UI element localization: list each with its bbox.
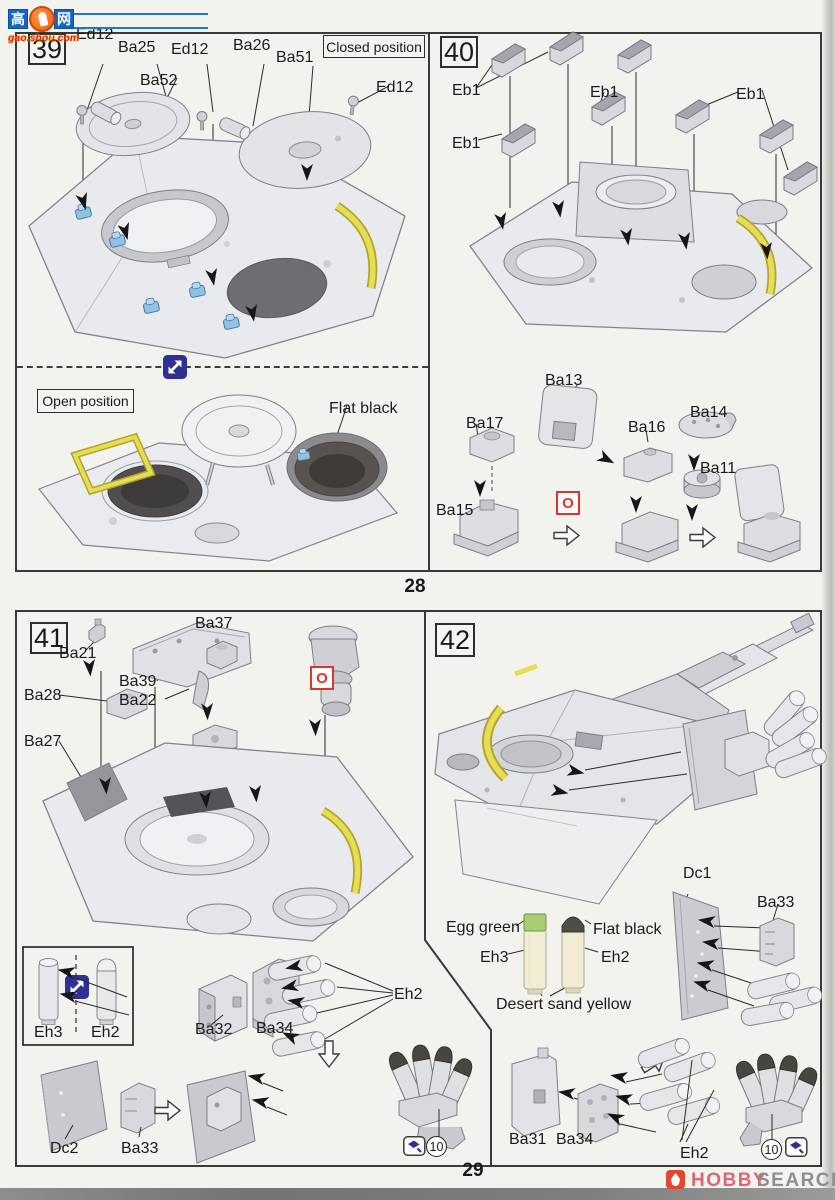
brand-hobby: HOBBY <box>691 1170 767 1192</box>
count-badge-41: 10 <box>426 1136 447 1157</box>
closed-position-text: Closed position <box>326 39 422 55</box>
watermark-char-left: 高 <box>8 9 28 29</box>
part-label-ba31: Ba31 <box>509 1132 546 1149</box>
closed-open-divider <box>17 366 428 368</box>
part-label-ba33-42: Ba33 <box>757 895 794 912</box>
optional-symbol-text-41: O <box>316 670 328 687</box>
part-label-ba16: Ba16 <box>628 420 665 437</box>
part-label-ed12-c: Ed12 <box>376 80 413 97</box>
watermark-line-bottom <box>68 27 208 29</box>
watermark-line-top <box>68 13 208 15</box>
part-label-eb1-a: Eb1 <box>452 83 480 100</box>
count-badge-text-42: 10 <box>765 1143 779 1157</box>
watermark-logo: 高 网 gao.shou.com <box>8 6 208 46</box>
part-label-ba52: Ba52 <box>140 73 177 90</box>
part-label-dc1: Dc1 <box>683 866 711 883</box>
brand-search: SEARCH <box>757 1170 835 1192</box>
panel-divider-top <box>428 32 430 572</box>
watermark-gear-icon <box>29 6 55 32</box>
part-label-ba26: Ba26 <box>233 38 270 55</box>
watermark-char-right-text: 网 <box>57 9 71 29</box>
part-label-ba39: Ba39 <box>119 674 156 691</box>
optional-symbol-step41: O <box>310 666 334 690</box>
part-label-eh2-cluster-42: Eh2 <box>680 1146 708 1163</box>
illustration-step39-open <box>17 393 411 565</box>
part-label-ba34-41: Ba34 <box>256 1021 293 1038</box>
part-label-ba11: Ba11 <box>700 461 736 478</box>
part-label-ba14: Ba14 <box>690 405 727 422</box>
part-label-eh3-box: Eh3 <box>34 1025 62 1042</box>
hobbysearch-flame-icon <box>666 1170 685 1189</box>
part-label-ba13: Ba13 <box>545 373 582 390</box>
part-label-eh3-42: Eh3 <box>480 950 508 967</box>
part-label-eh2-42: Eh2 <box>601 950 629 967</box>
count-badge-42: 10 <box>761 1139 782 1160</box>
instruction-sheet-page: 39 40 41 42 Closed position Open positio… <box>0 0 835 1200</box>
watermark-char-right: 网 <box>54 9 74 29</box>
part-label-ba21: Ba21 <box>59 646 96 663</box>
part-label-eb1-b: Eb1 <box>590 85 618 102</box>
part-label-ba28: Ba28 <box>24 688 61 705</box>
part-label-ba15: Ba15 <box>436 503 473 520</box>
step-number-42: 42 <box>435 623 475 657</box>
open-position-text: Open position <box>42 393 128 409</box>
illustration-step40 <box>432 30 822 365</box>
optional-symbol-text-40: O <box>562 495 574 512</box>
part-label-ba22: Ba22 <box>119 693 156 710</box>
glue-icon-42 <box>785 1137 809 1159</box>
closed-position-label: Closed position <box>323 35 425 58</box>
optional-symbol-step40: O <box>556 491 580 515</box>
illustration-step41 <box>15 615 427 947</box>
part-label-dc2: Dc2 <box>50 1141 78 1158</box>
illustration-step41-smoke-launchers <box>15 945 490 1167</box>
illustration-step42-paint-guide <box>430 890 830 1048</box>
part-label-ba37: Ba37 <box>195 616 232 633</box>
glue-icon-41 <box>403 1136 427 1158</box>
illustration-step39-closed <box>17 64 428 366</box>
paint-label-flat-black-39: Flat black <box>329 401 397 418</box>
watermark-thumb-icon <box>38 11 49 26</box>
part-label-ba51: Ba51 <box>276 50 313 67</box>
part-label-eh2-cluster-41: Eh2 <box>394 987 422 1004</box>
illustration-step42 <box>427 612 823 907</box>
watermark-char-left-text: 高 <box>11 9 25 29</box>
watermark-url: gao.shou.com <box>8 32 79 44</box>
step-42-label: 42 <box>440 625 470 656</box>
count-badge-text-41: 10 <box>430 1140 444 1154</box>
open-position-label: Open position <box>37 389 134 413</box>
part-label-eb1-d: Eb1 <box>452 136 480 153</box>
paint-label-flat-black-42: Flat black <box>593 922 661 939</box>
page-number-28: 28 <box>400 577 430 597</box>
part-label-ba34-42: Ba34 <box>556 1132 593 1149</box>
part-label-ba27: Ba27 <box>24 734 61 751</box>
page-number-29: 29 <box>458 1161 488 1181</box>
paint-label-desert-sand: Desert sand yellow <box>496 997 631 1014</box>
step-40-label: 40 <box>444 37 474 68</box>
part-label-eb1-c: Eb1 <box>736 87 764 104</box>
step-number-40: 40 <box>440 36 478 68</box>
part-label-ba33-41: Ba33 <box>121 1141 158 1158</box>
part-label-eh2-box: Eh2 <box>91 1025 119 1042</box>
paint-label-egg-green: Egg green <box>446 920 520 937</box>
illustration-step40-subassembly <box>432 368 820 566</box>
part-label-ba17: Ba17 <box>466 416 503 433</box>
part-label-ba32: Ba32 <box>195 1022 232 1039</box>
